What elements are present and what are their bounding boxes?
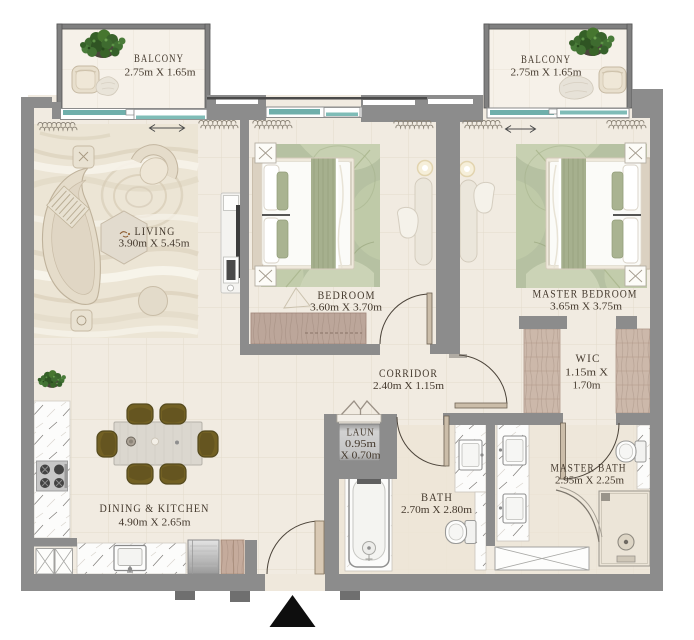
svg-text:2.75m X 1.65m: 2.75m X 1.65m xyxy=(125,68,196,79)
svg-text:1.70m: 1.70m xyxy=(573,381,601,392)
svg-text:WIC: WIC xyxy=(576,353,601,365)
svg-text:2.95m X 2.25m: 2.95m X 2.25m xyxy=(555,476,624,487)
svg-text:LIVING: LIVING xyxy=(135,226,176,238)
svg-text:3.65m X 3.75m: 3.65m X 3.75m xyxy=(550,302,622,313)
svg-text:3.60m X 3.70m: 3.60m X 3.70m xyxy=(310,303,382,314)
svg-text:1.15m X: 1.15m X xyxy=(565,368,608,379)
svg-text:MASTER BEDROOM: MASTER BEDROOM xyxy=(533,289,638,301)
svg-text:2.75m X 1.65m: 2.75m X 1.65m xyxy=(511,68,582,79)
svg-text:2.40m X 1.15m: 2.40m X 1.15m xyxy=(373,381,444,392)
svg-text:BEDROOM: BEDROOM xyxy=(318,290,376,302)
svg-text:BATH: BATH xyxy=(421,492,453,504)
svg-text:2.70m X 2.80m: 2.70m X 2.80m xyxy=(401,505,472,516)
svg-text:0.95m: 0.95m xyxy=(345,439,376,450)
svg-text:DINING & KITCHEN: DINING & KITCHEN xyxy=(100,503,210,515)
svg-text:LAUN: LAUN xyxy=(347,428,375,439)
svg-text:MASTER BATH: MASTER BATH xyxy=(551,463,627,475)
svg-text:3.90m X 5.45m: 3.90m X 5.45m xyxy=(119,239,190,250)
svg-text:CORRIDOR: CORRIDOR xyxy=(379,368,438,380)
svg-text:BALCONY: BALCONY xyxy=(134,53,184,65)
svg-text:4.90m X 2.65m: 4.90m X 2.65m xyxy=(119,518,191,529)
svg-text:BALCONY: BALCONY xyxy=(521,54,571,66)
svg-text:X 0.70m: X 0.70m xyxy=(341,451,381,462)
